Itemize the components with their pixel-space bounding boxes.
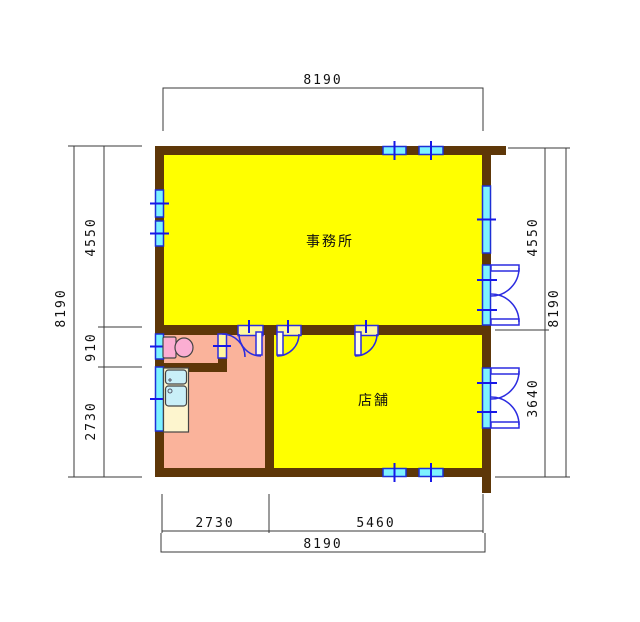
dimension-top: 8190 <box>163 73 483 131</box>
middle-wall <box>155 325 482 335</box>
dim-left-seg3: 2730 <box>84 401 99 440</box>
double-door-office <box>477 265 519 325</box>
dim-right-seg2: 3640 <box>526 378 541 417</box>
dim-right-total: 8190 <box>547 288 562 327</box>
dimension-bottom: 2730 5460 8190 <box>161 494 485 552</box>
kitchen-sink-icon <box>164 368 189 432</box>
dim-left-total: 8190 <box>54 288 69 327</box>
floor-plan-canvas: 事務所 店舗 8190 2730 5460 8190 4550 910 2730… <box>0 0 640 622</box>
dimension-left: 4550 910 2730 8190 <box>54 146 142 477</box>
dim-top-total: 8190 <box>303 73 342 88</box>
double-door-shop <box>477 368 519 428</box>
shop-label: 店舗 <box>358 393 390 409</box>
dim-bottom-seg1: 2730 <box>195 516 234 531</box>
dim-right-seg1: 4550 <box>526 217 541 256</box>
top-wall <box>155 146 506 155</box>
floor-plan-drawing: 事務所 店舗 8190 2730 5460 8190 4550 910 2730… <box>0 0 640 622</box>
hall-shop-divider-wall <box>265 325 274 477</box>
office-label: 事務所 <box>306 234 354 250</box>
dim-left-seg2: 910 <box>84 332 99 361</box>
dim-bottom-seg2: 5460 <box>356 516 395 531</box>
room-fills <box>164 155 482 468</box>
toilet-fixture-icon <box>163 337 193 358</box>
dim-bottom-total: 8190 <box>303 537 342 552</box>
dim-left-seg1: 4550 <box>84 217 99 256</box>
